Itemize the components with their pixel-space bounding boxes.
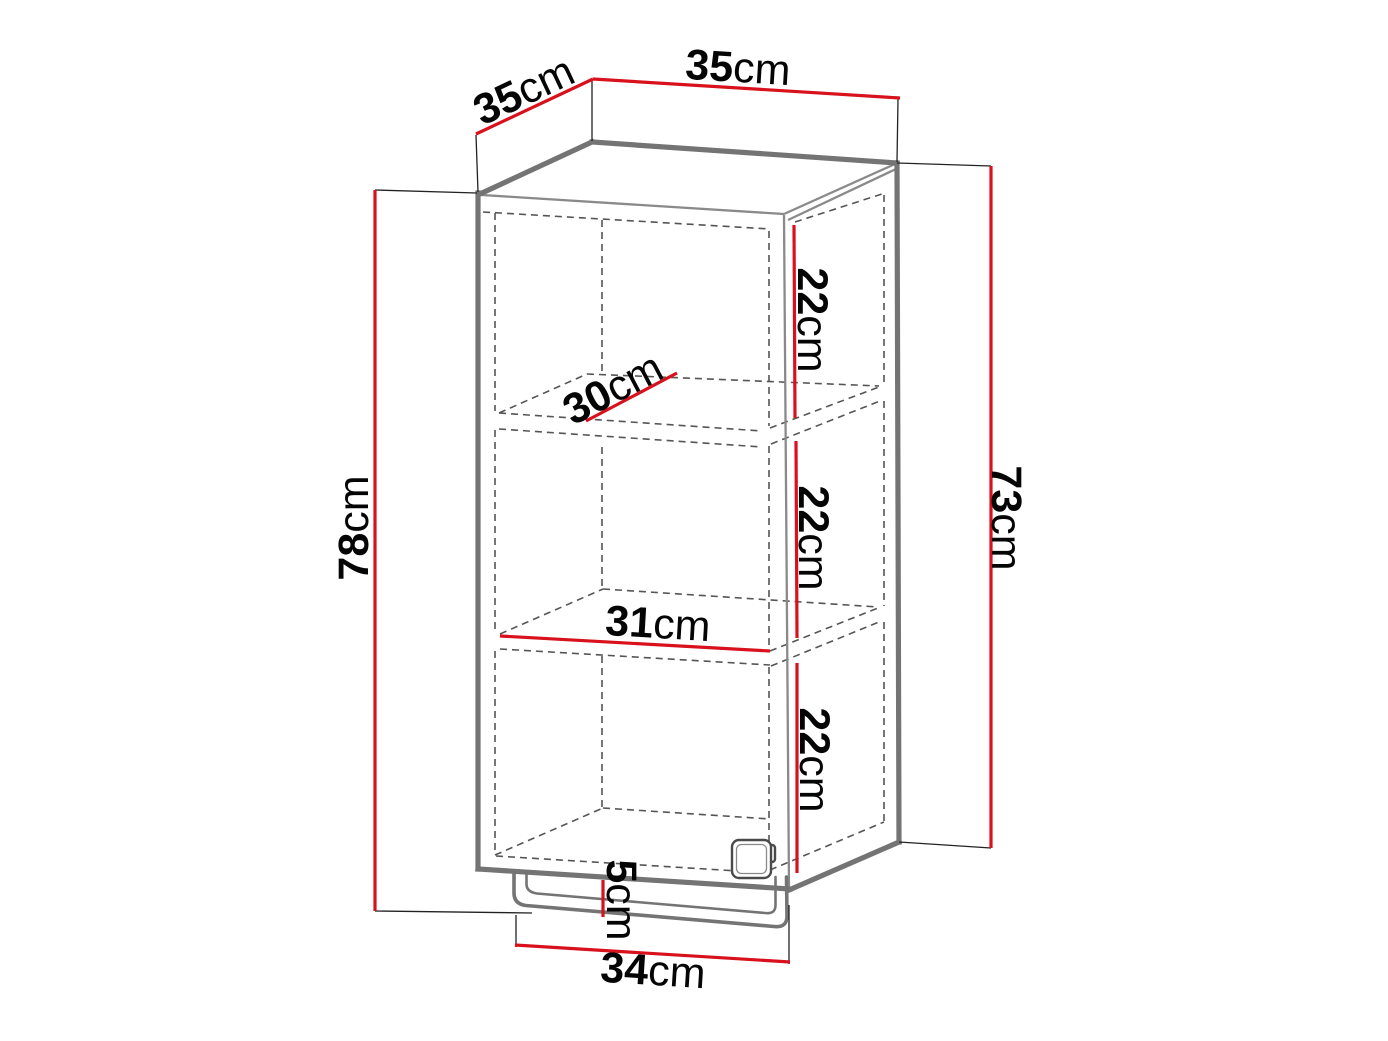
dimension-label-gap-top: 22cm bbox=[788, 267, 836, 372]
ext-height-carcass-top bbox=[897, 163, 991, 166]
dimension-label-height-carcass: 73cm bbox=[982, 465, 1030, 570]
shelf-upper-front-bottom-edge bbox=[499, 429, 762, 447]
hidden-edge-floor-right bbox=[770, 822, 884, 870]
dimension-label-height-total: 78cm bbox=[330, 475, 378, 580]
dimension-label-depth-top: 35cm bbox=[466, 47, 582, 135]
dimension-label-gap-middle: 22cm bbox=[789, 485, 837, 590]
dimension-label-rail-width: 34cm bbox=[599, 944, 707, 999]
dimension-label-gap-bottom: 22cm bbox=[790, 707, 838, 812]
hidden-edge-ceiling-front bbox=[483, 212, 770, 229]
hidden-edge-floor-back bbox=[603, 808, 770, 819]
shelf-lower-left-edge bbox=[500, 589, 603, 634]
edge-top-left bbox=[482, 142, 592, 193]
cabinet-dimension-diagram: 35cm 35cm 78cm 73cm 22cm 22cm 22cm 30cm … bbox=[0, 0, 1388, 1041]
ext-depth-front bbox=[476, 135, 478, 192]
shelf-upper-right-bottom-edge bbox=[771, 401, 880, 444]
dimension-label-shelf-width: 31cm bbox=[604, 597, 712, 651]
dimension-label-rail-offset: 5cm bbox=[597, 859, 645, 940]
edge-bottom-right bbox=[789, 842, 899, 890]
edge-front-top bbox=[482, 195, 784, 214]
ext-width-right bbox=[897, 99, 898, 162]
ext-height-total-bottom bbox=[375, 911, 532, 913]
wall-bracket bbox=[732, 840, 775, 878]
shelf-upper-hidden-edges bbox=[499, 374, 880, 447]
dimension-label-width-top: 35cm bbox=[684, 41, 792, 95]
shelf-lower-front-bottom-edge bbox=[500, 649, 770, 665]
edge-back-right bbox=[897, 163, 899, 842]
edge-top-right-outer bbox=[784, 164, 895, 214]
diagram-canvas: 35cm 35cm 78cm 73cm 22cm 22cm 22cm 30cm … bbox=[0, 0, 1388, 1041]
dimension-labels: 35cm 35cm 78cm 73cm 22cm 22cm 22cm 30cm … bbox=[330, 41, 1030, 998]
hidden-edge-floor-left bbox=[495, 808, 603, 855]
shelf-upper-front-edge bbox=[499, 413, 762, 431]
ext-height-carcass-bottom bbox=[899, 842, 991, 848]
ext-height-total-top bbox=[375, 190, 477, 193]
edge-top-back bbox=[592, 142, 897, 163]
hidden-edge-ceiling-right bbox=[795, 193, 885, 222]
